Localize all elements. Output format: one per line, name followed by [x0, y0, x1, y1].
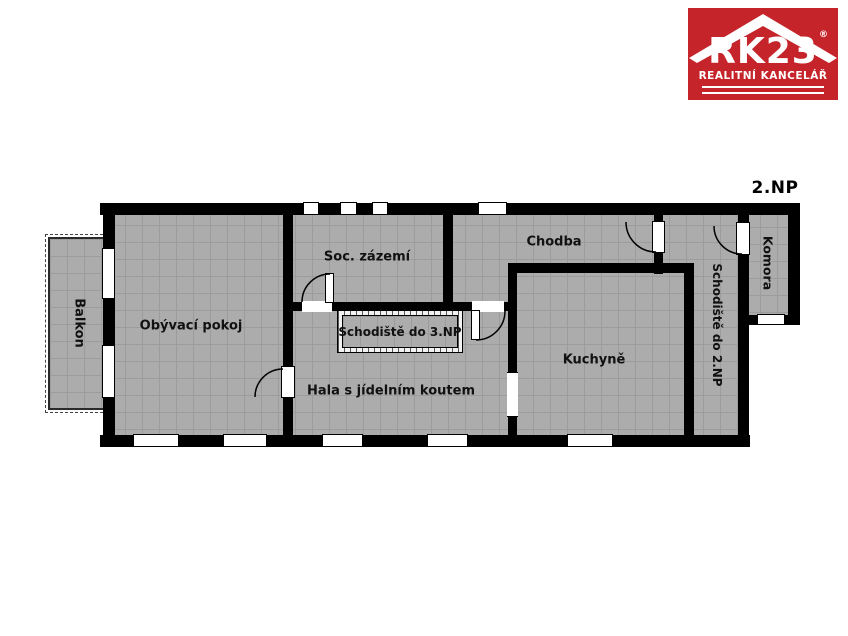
window-bottom-1	[133, 434, 179, 447]
room-label-obyvaci-pokoj: Obývací pokoj	[140, 319, 243, 334]
logo-divider-line	[702, 92, 824, 94]
room-label-komora: Komora	[761, 236, 776, 290]
room-label-schodiste-2np: Schodiště do 2.NP	[710, 263, 724, 386]
window-top-1	[303, 202, 319, 215]
window-bottom-4	[427, 434, 468, 447]
room-label-soc-zazemi: Soc. zázemí	[324, 250, 410, 265]
logo-tagline: REALITNÍ KANCELÁŘ	[688, 70, 838, 82]
window-top-2	[340, 202, 357, 215]
wall-left	[103, 203, 115, 447]
window-left-1	[102, 248, 115, 299]
wall-bottom	[100, 435, 750, 447]
wall-kitchen-top	[508, 263, 694, 273]
window-top-4	[478, 202, 507, 215]
room-label-balkon: Balkon	[72, 298, 87, 348]
door-komora-leaf	[736, 222, 750, 255]
floor-level-label: 2.NP	[751, 178, 799, 198]
door-chodba-hala-leaf	[471, 310, 480, 340]
window-bottom-2	[223, 434, 267, 447]
opening-hala-kitchen	[507, 372, 518, 417]
window-bottom-3	[322, 434, 363, 447]
logo-divider-line	[702, 86, 824, 88]
logo-registered-mark: ®	[819, 30, 828, 40]
floor-plan-page: RK23 ® REALITNÍ KANCELÁŘ 2.NP	[0, 0, 848, 636]
logo-brand-text: RK23	[688, 34, 838, 70]
room-label-chodba: Chodba	[526, 235, 581, 250]
window-komora	[757, 314, 785, 325]
stairs-to-3np-box: Schodiště do 3.NP	[337, 310, 463, 353]
window-left-2	[102, 345, 115, 398]
window-bottom-5	[567, 434, 613, 447]
window-top-3	[372, 202, 388, 215]
door-chodba-entry-leaf	[652, 221, 665, 253]
room-label-kuchyne: Kuchyně	[563, 353, 626, 368]
door-soczazemi-leaf	[325, 273, 334, 303]
agency-logo: RK23 ® REALITNÍ KANCELÁŘ	[688, 8, 838, 100]
wall-kitchen-right	[684, 273, 694, 435]
wall-soczazemi-chodba	[443, 214, 453, 311]
door-livingroom-leaf	[281, 366, 295, 398]
room-label-hala: Hala s jídelním koutem	[307, 384, 475, 399]
wall-right-upper	[788, 203, 800, 325]
room-label-schodiste-3np: Schodiště do 3.NP	[342, 315, 458, 348]
wall-livingroom-hall	[283, 214, 293, 435]
